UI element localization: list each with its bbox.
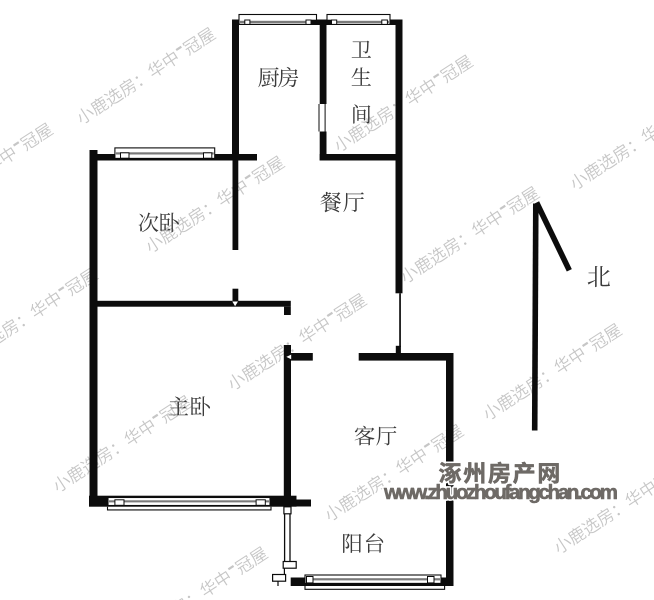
svg-text:www.zhuozhoufangchan.com: www.zhuozhoufangchan.com bbox=[383, 481, 618, 504]
